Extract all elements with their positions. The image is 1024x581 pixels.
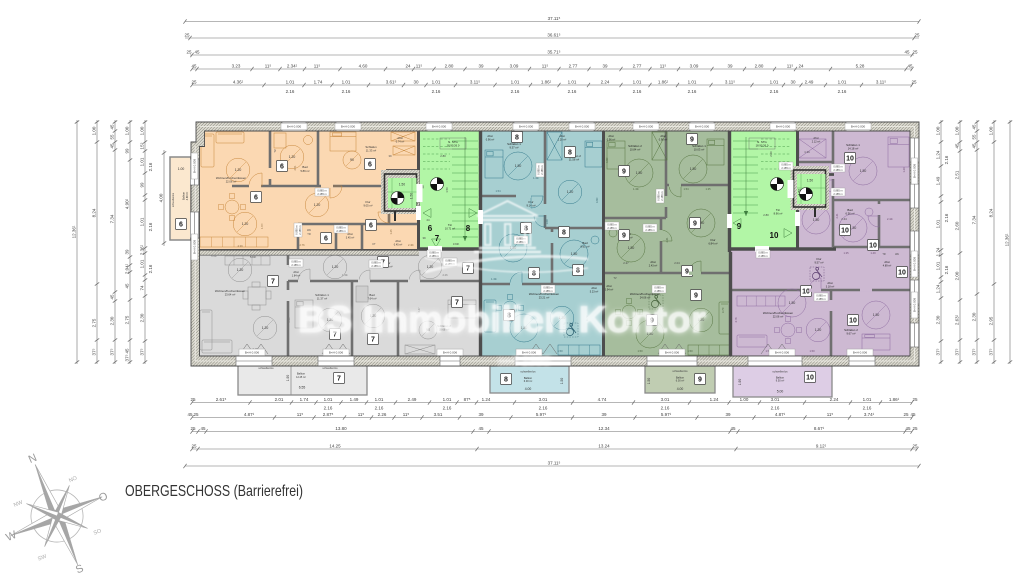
svg-text:2.30: 2.30 [110,316,115,325]
svg-text:39: 39 [601,412,607,417]
svg-text:B×H 0.000: B×H 0.000 [287,125,302,129]
svg-text:37⁵: 37⁵ [955,348,960,355]
svg-text:10: 10 [770,231,779,240]
svg-text:74: 74 [140,285,145,291]
svg-text:1.24: 1.24 [936,150,941,159]
svg-text:5.97¹: 5.97¹ [661,412,672,417]
svg-text:2.16: 2.16 [944,213,949,222]
svg-text:25: 25 [186,49,192,54]
svg-text:1.49: 1.49 [350,397,359,402]
svg-text:1.01: 1.01 [688,79,697,84]
svg-text:1.90: 1.90 [738,379,742,386]
svg-text:B×H 0.008: B×H 0.008 [193,240,197,255]
svg-text:7: 7 [271,279,275,286]
svg-text:TR: TR [307,232,311,236]
svg-text:2.27: 2.27 [623,261,629,265]
svg-text:2.26: 2.26 [442,273,448,277]
svg-text:8: 8 [504,377,508,384]
svg-text:39: 39 [727,63,733,68]
svg-text:2.16: 2.16 [944,265,949,274]
svg-text:B×H 0.006: B×H 0.006 [853,351,868,355]
svg-text:1.49: 1.49 [870,251,876,255]
svg-text:Schlafen 1: Schlafen 1 [846,143,860,147]
svg-text:2.40¹: 2.40¹ [408,243,414,247]
svg-text:13.24: 13.24 [598,443,610,448]
svg-text:1.01: 1.01 [140,157,145,166]
svg-text:2.185 m: 2.185 m [540,165,544,174]
svg-text:Bad: Bad [582,241,588,245]
svg-text:11⁵: 11⁵ [416,63,423,68]
svg-text:8.67¹: 8.67¹ [814,426,825,431]
svg-text:11⁵: 11⁵ [297,412,304,417]
svg-text:2.185 m: 2.185 m [654,289,663,293]
svg-text:1.20: 1.20 [235,168,242,172]
svg-text:1.01: 1.01 [432,79,441,84]
svg-text:11⁵: 11⁵ [265,63,272,68]
svg-text:B×H 0.000: B×H 0.000 [341,125,356,129]
svg-text:3.23: 3.23 [232,63,241,68]
svg-text:1.50: 1.50 [515,164,522,168]
svg-text:2.16: 2.16 [443,406,452,411]
svg-text:2.185 m: 2.185 m [816,297,825,301]
svg-text:1.54: 1.54 [683,187,689,191]
svg-text:2.04: 2.04 [674,261,680,265]
svg-text:45: 45 [972,124,977,130]
svg-text:6: 6 [369,223,373,230]
svg-text:25: 25 [190,426,196,431]
svg-text:7.34: 7.34 [972,215,977,224]
svg-text:1.50: 1.50 [807,179,813,183]
svg-text:3.09: 3.09 [510,63,519,68]
svg-text:7.34: 7.34 [110,214,115,223]
svg-text:Flur: Flur [817,257,822,261]
svg-text:Bad: Bad [302,165,308,169]
svg-text:2.44: 2.44 [841,217,847,221]
svg-text:3.45 m²: 3.45 m² [346,236,355,239]
svg-text:4.87¹: 4.87¹ [244,412,255,417]
svg-text:25: 25 [191,79,197,84]
svg-text:87⁵: 87⁵ [464,397,471,402]
svg-text:2.185 m: 2.185 m [317,192,326,196]
svg-text:1.50: 1.50 [628,246,635,250]
svg-text:B×H 0.000: B×H 0.000 [695,125,710,129]
svg-text:2.80: 2.80 [763,213,769,217]
svg-text:Abst: Abst [293,270,298,274]
svg-text:Schlafen: Schlafen [365,145,377,149]
svg-text:1.74: 1.74 [314,79,323,84]
svg-text:2.80: 2.80 [755,63,764,68]
svg-text:35.71⁵: 35.71⁵ [547,49,560,54]
svg-text:1.50: 1.50 [789,301,796,305]
svg-text:2.49: 2.49 [805,79,814,84]
svg-text:0.885 m: 0.885 m [657,191,661,200]
svg-text:3.11⁵: 3.11⁵ [876,79,886,84]
svg-text:1.00: 1.00 [140,126,145,135]
svg-text:6: 6 [324,236,328,243]
svg-text:1.01: 1.01 [375,397,384,402]
svg-text:2.24: 2.24 [601,79,610,84]
svg-text:9.12¹: 9.12¹ [816,443,827,448]
svg-text:2.185 m: 2.185 m [371,264,380,268]
svg-text:25: 25 [193,412,199,417]
svg-text:37⁵: 37⁵ [989,348,994,355]
svg-text:Abst: Abst [397,136,402,140]
svg-text:2.16: 2.16 [324,406,333,411]
svg-text:6: 6 [179,222,183,229]
svg-text:2.51: 2.51 [293,165,297,171]
svg-text:39: 39 [388,154,392,158]
svg-text:7: 7 [337,376,341,383]
svg-text:10: 10 [869,243,877,250]
svg-text:25: 25 [184,32,190,37]
svg-text:1.35: 1.35 [705,187,711,191]
svg-text:1.50: 1.50 [647,378,651,385]
svg-text:2.26: 2.26 [378,412,387,417]
svg-text:Abst: Abst [827,281,832,285]
svg-text:2.185 m: 2.185 m [833,192,842,196]
svg-text:2.80: 2.80 [445,63,454,68]
svg-text:2.34¹: 2.34¹ [287,63,298,68]
svg-text:2.44¹: 2.44¹ [887,217,893,221]
svg-text:6.00 m²: 6.00 m² [676,380,685,383]
svg-text:4.39: 4.39 [237,244,243,248]
svg-text:TV: TV [273,149,277,153]
svg-text:Flur: Flur [711,238,716,242]
svg-text:Abst: Abst [813,136,818,140]
svg-text:Abst: Abst [608,134,613,138]
svg-text:3.01: 3.01 [661,397,670,402]
svg-text:45: 45 [730,426,736,431]
svg-text:14.25: 14.25 [329,443,341,448]
svg-text:B×H 0.000: B×H 0.000 [639,125,654,129]
svg-text:9.50 m²: 9.50 m² [776,380,785,383]
svg-text:6: 6 [368,162,372,169]
svg-text:0.94 m²: 0.94 m² [605,288,614,291]
svg-text:10: 10 [846,156,854,163]
svg-text:25: 25 [912,426,918,431]
svg-text:8: 8 [466,224,471,233]
svg-text:9: 9 [698,377,702,384]
svg-text:B×H 0.006: B×H 0.006 [443,351,458,355]
svg-text:Schlafen 2: Schlafen 2 [628,144,642,148]
svg-text:1.50: 1.50 [813,218,820,222]
svg-text:8: 8 [568,150,572,157]
svg-text:1.50: 1.50 [636,171,643,175]
svg-text:1.50: 1.50 [637,349,643,353]
svg-text:B×H 0.008: B×H 0.008 [913,298,917,313]
svg-text:schwellenlos: schwellenlos [772,370,788,374]
svg-text:2.185 m: 2.185 m [645,228,654,232]
svg-text:1.01: 1.01 [770,79,779,84]
svg-text:9.37 m²: 9.37 m² [509,146,518,150]
svg-text:3.11⁵: 3.11⁵ [725,79,735,84]
svg-text:39: 39 [725,412,731,417]
svg-text:TR: TR [882,253,885,256]
svg-text:Flur: Flur [366,200,371,204]
svg-text:1.24: 1.24 [936,284,941,293]
svg-text:36.61⁵: 36.61⁵ [547,32,560,37]
svg-text:18.91/26.0: 18.91/26.0 [756,144,769,148]
svg-text:N. STG: N. STG [757,140,767,144]
svg-text:BS Immobilien Kontor: BS Immobilien Kontor [298,299,706,340]
svg-text:1.20: 1.20 [289,155,296,159]
svg-text:Schlafen 1: Schlafen 1 [315,293,329,297]
svg-text:11⁵: 11⁵ [660,63,667,68]
svg-text:4.76: 4.76 [734,317,738,323]
svg-text:2.16: 2.16 [771,406,780,411]
svg-text:Abst: Abst [395,239,400,243]
svg-text:Wohnen/Kochen/Essen: Wohnen/Kochen/Essen [216,176,247,180]
svg-text:25: 25 [190,397,196,402]
svg-text:1.24: 1.24 [936,247,941,256]
svg-text:24: 24 [798,63,804,68]
svg-text:2.16: 2.16 [688,89,697,94]
svg-text:2.16: 2.16 [944,155,949,164]
svg-text:schwellenlos: schwellenlos [258,366,274,370]
svg-text:6: 6 [428,224,433,233]
svg-text:1.01: 1.01 [633,79,642,84]
svg-text:10: 10 [849,318,857,325]
svg-text:2.01: 2.01 [275,397,284,402]
svg-text:6: 6 [254,195,258,202]
svg-text:13.80: 13.80 [335,426,347,431]
svg-text:0.96 m²: 0.96 m² [486,138,495,141]
svg-text:10.71 m²: 10.71 m² [445,227,455,231]
svg-text:1.20: 1.20 [237,268,244,272]
svg-text:24: 24 [426,218,430,222]
svg-text:39: 39 [422,236,426,240]
svg-text:1.01: 1.01 [140,217,145,226]
svg-text:2.43 m²: 2.43 m² [649,264,658,267]
svg-text:0.885 m: 0.885 m [654,286,663,290]
svg-text:B×H 0.000: B×H 0.000 [432,125,447,129]
svg-text:1.86¹: 1.86¹ [541,79,552,84]
svg-text:25: 25 [911,79,917,84]
svg-text:3.11⁵: 3.11⁵ [470,79,480,84]
svg-text:2.41: 2.41 [665,237,669,243]
svg-text:2.49: 2.49 [408,397,417,402]
svg-text:2.185 m: 2.185 m [758,254,767,258]
svg-text:2.16: 2.16 [539,406,548,411]
svg-text:45: 45 [478,426,484,431]
svg-text:45: 45 [110,294,115,300]
svg-text:2.16: 2.16 [661,406,670,411]
svg-text:B×H 0.008: B×H 0.008 [193,159,197,174]
svg-text:1.20: 1.20 [815,328,822,332]
svg-text:2.87⁵: 2.87⁵ [323,412,334,417]
svg-text:6.55: 6.55 [299,386,306,390]
svg-text:B×H 0.000: B×H 0.000 [519,125,534,129]
svg-text:24: 24 [405,63,411,68]
svg-text:1.01: 1.01 [568,79,577,84]
svg-text:schwellenlos: schwellenlos [520,370,536,374]
svg-text:6: 6 [280,164,284,171]
svg-text:Tür: Tür [448,223,452,227]
svg-text:Abst: Abst [650,260,655,264]
svg-text:1.01: 1.01 [443,397,452,402]
svg-text:45: 45 [907,63,913,68]
svg-text:37⁵: 37⁵ [972,348,977,355]
svg-text:2.12 m²: 2.12 m² [812,140,821,143]
svg-text:2.76: 2.76 [299,243,305,247]
svg-text:Abst: Abst [559,134,564,138]
svg-text:10: 10 [802,289,810,296]
svg-text:2.185 m: 2.185 m [833,168,842,172]
svg-text:25: 25 [903,412,909,417]
svg-text:Abst: Abst [660,134,665,138]
svg-text:1.01: 1.01 [936,219,941,228]
svg-text:11.33 m²: 11.33 m² [366,149,377,153]
svg-text:45: 45 [194,49,200,54]
svg-text:39: 39 [478,63,484,68]
svg-text:Wohnen/Kochen/Essen: Wohnen/Kochen/Essen [215,289,246,293]
svg-text:45: 45 [904,49,910,54]
svg-text:1.43¹: 1.43¹ [342,273,348,277]
svg-text:4.90¹: 4.90¹ [125,198,130,209]
svg-text:1.01: 1.01 [286,79,295,84]
svg-text:8.96 m²: 8.96 m² [774,212,783,216]
svg-text:10.03 m²: 10.03 m² [694,148,705,152]
svg-text:22.06 m²: 22.06 m² [226,180,237,184]
svg-text:1.50: 1.50 [560,378,564,385]
svg-text:1.74: 1.74 [300,397,309,402]
svg-text:37⁵: 37⁵ [110,348,115,355]
svg-text:3.18 m²: 3.18 m² [826,285,835,288]
svg-text:4.87¹: 4.87¹ [775,412,786,417]
svg-text:0.885 m: 0.885 m [816,294,825,298]
svg-text:4.74: 4.74 [598,397,607,402]
svg-text:39: 39 [478,412,484,417]
svg-text:0.885 m: 0.885 m [317,189,326,193]
svg-text:1.50: 1.50 [557,349,563,353]
svg-text:1.25: 1.25 [389,229,393,235]
svg-text:37.11⁵: 37.11⁵ [548,460,561,465]
svg-text:B×H 0.000: B×H 0.000 [776,125,791,129]
svg-text:39: 39 [125,249,130,255]
svg-text:1.97¹: 1.97¹ [260,223,264,229]
svg-text:99: 99 [140,182,145,188]
svg-text:1.43¹: 1.43¹ [491,277,497,281]
svg-text:2.185 m: 2.185 m [607,226,616,230]
svg-text:8: 8 [515,135,519,142]
svg-text:1.68: 1.68 [545,219,549,225]
svg-text:1.01: 1.01 [838,79,847,84]
svg-text:2.61⁵: 2.61⁵ [216,397,227,402]
svg-text:0.885 m: 0.885 m [833,189,842,193]
svg-text:1.20 m²: 1.20 m² [558,138,567,141]
svg-text:2.185 m: 2.185 m [781,166,790,170]
svg-text:8.24: 8.24 [989,208,994,217]
svg-text:Tür: Tür [776,208,780,212]
svg-text:45: 45 [191,63,197,68]
svg-text:1.20: 1.20 [902,167,906,173]
svg-text:45: 45 [972,143,977,149]
svg-text:1.20: 1.20 [242,222,249,226]
svg-text:4.60¹: 4.60¹ [605,157,609,163]
svg-text:0.885 m: 0.885 m [336,226,345,230]
svg-text:2.16: 2.16 [432,89,441,94]
svg-text:OBERGESCHOSS (Barrierefrei): OBERGESCHOSS (Barrierefrei) [125,483,303,500]
svg-text:1.50: 1.50 [410,193,414,199]
svg-text:Abst: Abst [606,284,611,288]
svg-text:2.185 m: 2.185 m [660,191,664,200]
svg-text:3.75¹: 3.75¹ [721,307,725,313]
svg-text:25: 25 [191,443,197,448]
svg-text:8: 8 [562,230,566,237]
svg-text:2.00: 2.00 [769,151,773,157]
svg-text:1.50: 1.50 [873,313,880,317]
svg-text:B×H 0.006: B×H 0.006 [245,351,260,355]
svg-text:6.36 m²: 6.36 m² [845,212,854,216]
svg-text:25: 25 [914,32,920,37]
svg-text:11⁵: 11⁵ [827,412,834,417]
svg-text:10: 10 [898,270,906,277]
svg-text:2.80: 2.80 [440,154,446,158]
svg-text:1.50: 1.50 [571,252,578,256]
svg-text:5.28: 5.28 [856,63,865,68]
svg-text:KT: KT [372,242,376,246]
svg-text:5.97¹: 5.97¹ [536,412,547,417]
svg-text:2.185 m: 2.185 m [429,254,438,258]
svg-text:B×H 0.000: B×H 0.000 [851,125,866,129]
svg-text:4.89 m²: 4.89 m² [883,264,892,267]
svg-text:3.93¹: 3.93¹ [453,242,459,246]
svg-text:2.16: 2.16 [342,89,351,94]
svg-text:Balkon: Balkon [182,191,186,200]
svg-text:2.16: 2.16 [633,89,642,94]
svg-text:5.89 m²: 5.89 m² [300,169,309,173]
svg-text:1.20: 1.20 [314,203,321,207]
svg-text:6.00 m²: 6.00 m² [524,380,533,383]
svg-text:Abst: Abst [591,286,596,290]
svg-text:45: 45 [110,124,115,130]
svg-text:1.86¹: 1.86¹ [658,79,669,84]
svg-text:4.36¹: 4.36¹ [233,79,244,84]
svg-text:4.00: 4.00 [677,387,684,391]
svg-text:11⁵: 11⁵ [787,63,794,68]
svg-text:3.09: 3.09 [690,63,699,68]
svg-text:5.93¹: 5.93¹ [250,255,256,259]
svg-text:2.185 m: 2.185 m [298,225,302,234]
svg-text:0.885 m: 0.885 m [291,260,300,264]
svg-text:0.74 m²: 0.74 m² [396,140,405,143]
svg-text:10: 10 [806,375,814,382]
svg-text:9: 9 [622,169,626,176]
svg-text:0.96 m²: 0.96 m² [659,138,668,141]
svg-text:2.75: 2.75 [125,315,130,324]
svg-text:2.16: 2.16 [286,89,295,94]
svg-text:45: 45 [910,412,916,417]
svg-text:1.90: 1.90 [286,375,290,382]
svg-text:1.20: 1.20 [332,265,339,269]
svg-text:1.86¹: 1.86¹ [889,397,900,402]
svg-text:12.34: 12.34 [598,426,610,431]
svg-text:1.20: 1.20 [567,190,574,194]
svg-text:39: 39 [602,63,608,68]
svg-text:2.77: 2.77 [633,63,642,68]
svg-text:1.00: 1.00 [125,126,130,135]
svg-text:8.24: 8.24 [92,208,97,217]
svg-text:1.50: 1.50 [860,169,867,173]
svg-text:37⁵: 37⁵ [125,354,130,361]
svg-text:2.185 m: 2.185 m [291,263,300,267]
svg-text:2.77: 2.77 [569,63,578,68]
svg-text:N. STG: N. STG [448,140,458,144]
svg-text:9: 9 [685,269,689,276]
svg-text:4.88 m²: 4.88 m² [186,192,189,201]
svg-text:WA: WA [307,228,311,232]
svg-text:0.885 m: 0.885 m [781,163,790,167]
